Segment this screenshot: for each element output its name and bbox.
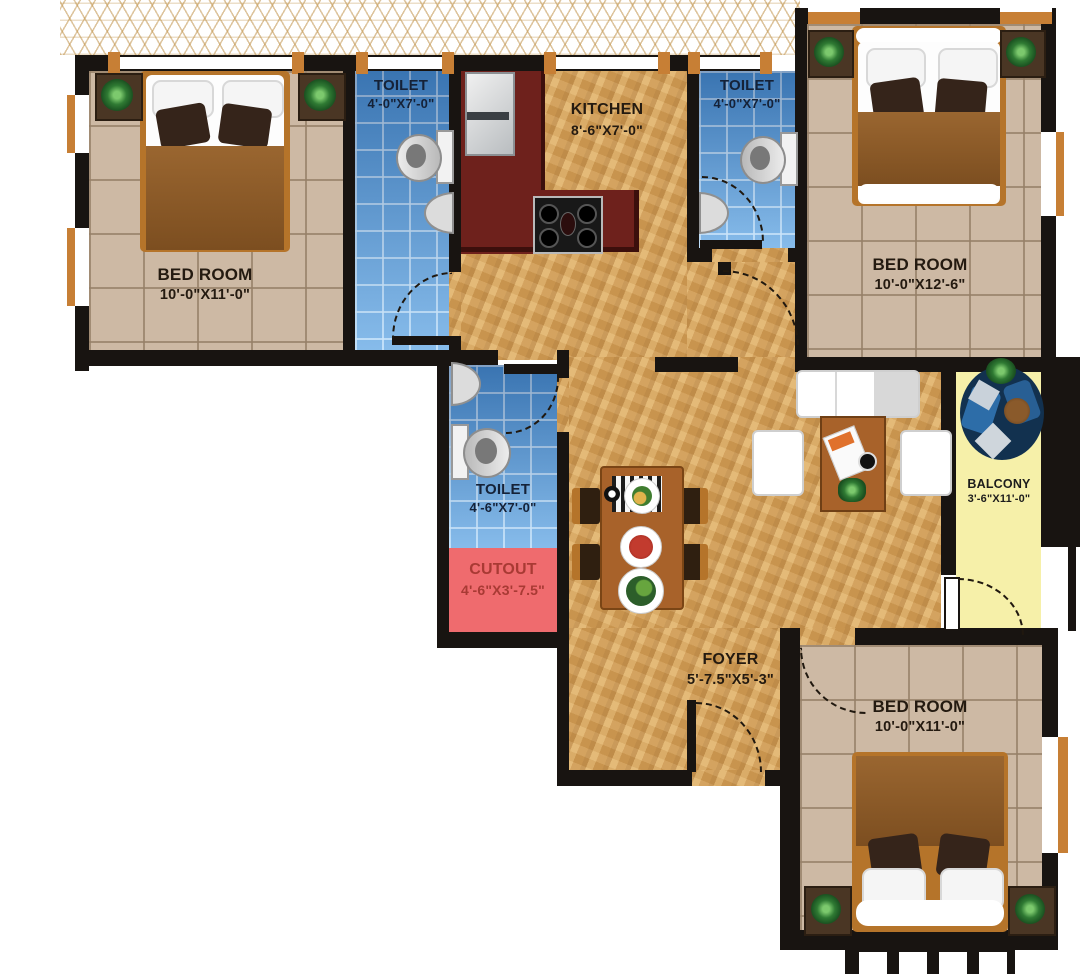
room-dims: 3'-6"X11'-0" (956, 492, 1042, 506)
room-name: BED ROOM (105, 264, 305, 286)
armchair (752, 430, 804, 496)
room-dims: 4'-0"X7'-0" (350, 96, 452, 113)
table-plant (838, 478, 866, 502)
toilet-bowl-inner (750, 146, 770, 170)
plant (811, 894, 841, 924)
sofa (796, 370, 920, 418)
room-dims: 4'-0"X7'-0" (695, 96, 799, 113)
dining-chair (680, 488, 708, 524)
bedroom-left-label: BED ROOM 10'-0"X11'-0" (105, 264, 305, 305)
wall-bedroom-right-left (795, 22, 807, 372)
window (1042, 737, 1058, 853)
room-name: BALCONY (956, 476, 1042, 492)
burner (539, 228, 559, 248)
plant (1015, 894, 1045, 924)
dining-chair (572, 488, 600, 524)
window-sill (442, 52, 454, 74)
center-burner (560, 212, 576, 236)
dining-chair (680, 544, 708, 580)
wall-cutout-bottom (437, 632, 569, 648)
window-sill (1058, 737, 1068, 853)
kitchen-label: KITCHEN 8'-6"X7'-0" (522, 100, 692, 139)
blanket (856, 756, 1004, 846)
window-sill (544, 52, 556, 74)
wall-toilet-mid-right-b (557, 432, 569, 785)
plant-box (808, 30, 854, 78)
balcony-table (1004, 398, 1030, 424)
window (1041, 132, 1056, 216)
window (368, 57, 442, 69)
balcony-label: BALCONY 3'-6"X11'-0" (956, 476, 1042, 507)
room-dims: 4'-6"X3'-7.5" (449, 581, 557, 599)
window-trim (1000, 6, 1052, 24)
dining-table (600, 466, 684, 610)
window-sill (356, 52, 368, 74)
door-gap-floor (692, 770, 765, 786)
room-dims: 10'-0"X11'-0" (105, 286, 305, 305)
toilet-middle-label: TOILET 4'-6"X7'-0" (451, 480, 555, 516)
plate (624, 478, 660, 514)
room-dims: 8'-6"X7'-0" (522, 121, 692, 139)
decor-pattern (60, 0, 800, 55)
wall-bedroom-bottom-right-a (1042, 628, 1058, 737)
room-name: BED ROOM (828, 696, 1012, 718)
food (632, 486, 652, 506)
burner (577, 228, 597, 248)
room-dims: 10'-0"X12'-6" (828, 276, 1012, 295)
door-gap-floor (800, 628, 855, 645)
wall-bedroom-left-bottom (75, 350, 455, 366)
headboard (856, 900, 1004, 926)
door-gap-floor (712, 248, 788, 262)
room-name: TOILET (451, 480, 555, 500)
foyer-label: FOYER 5'-7.5"X5'-3" (638, 650, 823, 690)
bedroom-right-label: BED ROOM 10'-0"X12'-6" (828, 254, 1012, 295)
plate (618, 568, 664, 614)
window-sill (1056, 132, 1064, 216)
plant (814, 37, 844, 67)
coffee-table (820, 416, 886, 512)
room-name: KITCHEN (522, 100, 692, 121)
room-name: TOILET (350, 76, 452, 96)
plant (101, 79, 133, 111)
wall-toilet2-bottom-a (687, 248, 712, 262)
gas-stove (533, 196, 603, 254)
bedroom-bottom-label: BED ROOM 10'-0"X11'-0" (828, 696, 1012, 737)
door-leaf (504, 364, 560, 374)
cushion (217, 103, 272, 150)
burner (577, 204, 597, 224)
room-name: CUTOUT (449, 560, 557, 581)
door-gap-floor (557, 378, 569, 432)
dining-chair (572, 544, 600, 580)
blanket (858, 112, 1000, 186)
room-name: FOYER (638, 650, 823, 671)
balcony-plant (986, 358, 1016, 384)
cushion (155, 102, 211, 150)
room-dims: 4'-6"X7'-0" (451, 500, 555, 517)
window-sill (67, 228, 75, 306)
fridge-sink-unit (465, 72, 515, 156)
plant-box (1008, 886, 1056, 936)
cutout-label: CUTOUT 4'-6"X3'-7.5" (449, 560, 557, 599)
blanket (146, 146, 284, 250)
window-trim (808, 6, 860, 24)
door-leaf-entrance (687, 700, 696, 772)
toilet-top-left-label: TOILET 4'-0"X7'-0" (350, 76, 452, 112)
armchair (900, 430, 952, 496)
footboard (858, 184, 1000, 202)
toilet-bowl-inner (406, 144, 426, 168)
window-sill (108, 52, 120, 74)
room-dims: 5'-7.5"X5'-3" (638, 671, 823, 690)
wall-foyer-bottom-a (557, 770, 692, 786)
room-dims: 10'-0"X11'-0" (828, 718, 1012, 737)
food (629, 535, 653, 559)
window-sill (760, 52, 772, 74)
window (75, 228, 89, 306)
room-name: TOILET (695, 76, 799, 96)
plant-box (804, 886, 852, 936)
window-sill (658, 52, 670, 74)
window-sill (292, 52, 304, 74)
burner (539, 204, 559, 224)
food (626, 576, 656, 606)
plate (620, 526, 662, 568)
floor-plan: BED ROOM 10'-0"X11'-0" TOILET 4'-0"X7'-0… (0, 0, 1080, 974)
plant-box (298, 73, 346, 121)
toilet-top-right-label: TOILET 4'-0"X7'-0" (695, 76, 799, 112)
window (700, 57, 760, 69)
plant-box (95, 73, 143, 121)
window-bottom (845, 950, 1015, 974)
window-sill (688, 52, 700, 74)
wall-bedroom-right-bottom-a (655, 357, 738, 372)
cup (604, 486, 620, 502)
wall-toilet-mid-left (437, 358, 449, 648)
newspaper-header (828, 431, 855, 451)
window (120, 57, 292, 69)
plant-box (1000, 30, 1046, 78)
wall-balcony-right (1041, 357, 1080, 547)
wall-right-thin (1068, 547, 1076, 631)
coffee-cup (858, 452, 877, 471)
plant (1006, 37, 1036, 67)
window (75, 95, 89, 153)
toilet-bowl-inner (475, 438, 497, 464)
sink-faucet (467, 112, 509, 120)
window-sill (67, 95, 75, 153)
window (556, 57, 658, 69)
room-name: BED ROOM (828, 254, 1012, 276)
plant (304, 79, 336, 111)
